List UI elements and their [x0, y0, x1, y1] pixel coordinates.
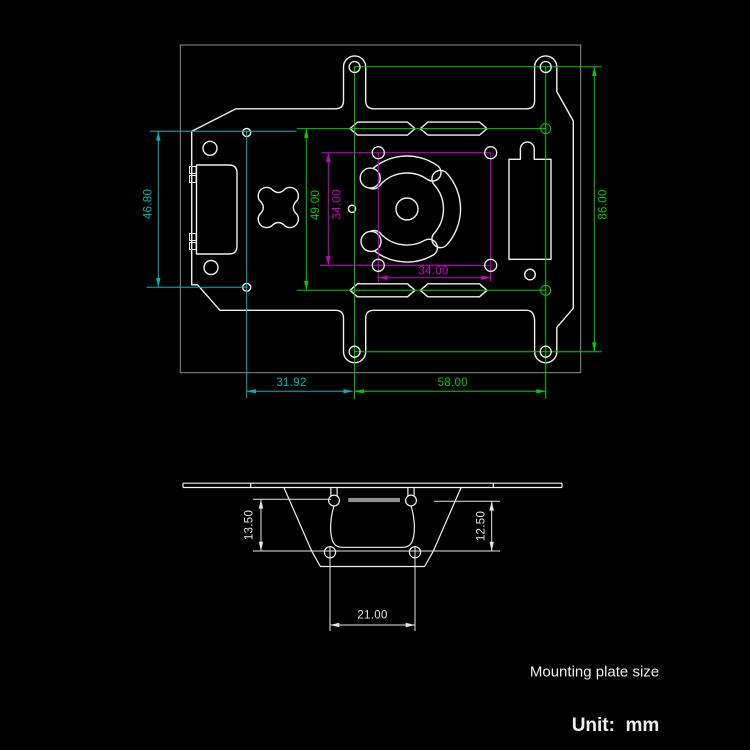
dim-bottom-left: 31.92: [276, 377, 306, 389]
clover-cutout: [258, 187, 298, 227]
side-view-arrows: [259, 499, 494, 627]
dim-right-height: 86.00: [598, 189, 610, 219]
left-hole-top: [203, 141, 217, 155]
unit-label: Unit: mm: [572, 715, 660, 736]
green-dimension-lines: [297, 67, 602, 399]
mounting-plate-technical-drawing: 49.00 86.00 58.00 46.80 31.92 34.00: [0, 0, 750, 750]
center-hole: [396, 198, 418, 220]
side-view-geometry: [183, 483, 562, 566]
plate-outline: [192, 56, 574, 363]
cyan-dimension-labels: 46.80 31.92: [143, 189, 307, 389]
dim-square-height: 34.00: [332, 189, 344, 219]
magenta-arrows: [326, 153, 491, 280]
damper-ear-right: [406, 495, 417, 506]
damper-ear-left: [329, 495, 340, 506]
camera-mount-square: [378, 153, 490, 266]
dim-slot-rows: 49.00: [310, 190, 322, 220]
drawing-canvas: 49.00 86.00 58.00 46.80 31.92 34.00: [0, 0, 750, 750]
dim-square-width: 34.00: [418, 266, 448, 278]
sheet-frame: [180, 45, 580, 373]
footer-text: Mounting plate size Unit: mm: [530, 664, 659, 737]
green-arrows: [304, 67, 596, 394]
gimbal-arc-slot-right: [432, 170, 461, 247]
dim-hole-spacing: 21.00: [357, 610, 387, 622]
hole-markers: [349, 62, 551, 358]
dim-left-depth: 13.50: [244, 510, 256, 540]
cyan-dimension-lines: [147, 131, 353, 398]
gimbal-slot-lobe-top: [360, 168, 380, 188]
dim-bottom-right: 58.00: [438, 377, 468, 389]
drawing-caption: Mounting plate size: [530, 664, 659, 681]
dim-left-height: 46.80: [143, 189, 155, 219]
cyan-arrows: [156, 131, 353, 393]
right-keyhole-cutout: [509, 142, 551, 259]
side-view-dimension-labels: 13.50 12.50 21.00: [244, 510, 488, 622]
cross-section-bar: [348, 498, 400, 502]
magenta-dimension-labels: 34.00 34.00: [332, 189, 449, 277]
right-small-hole: [525, 269, 536, 280]
pod-cavity: [331, 506, 415, 547]
connector-cutout: [197, 165, 238, 254]
left-hole-bottom: [204, 261, 218, 275]
dim-right-depth: 12.50: [476, 511, 488, 541]
connector-pin-marks: [190, 167, 197, 250]
